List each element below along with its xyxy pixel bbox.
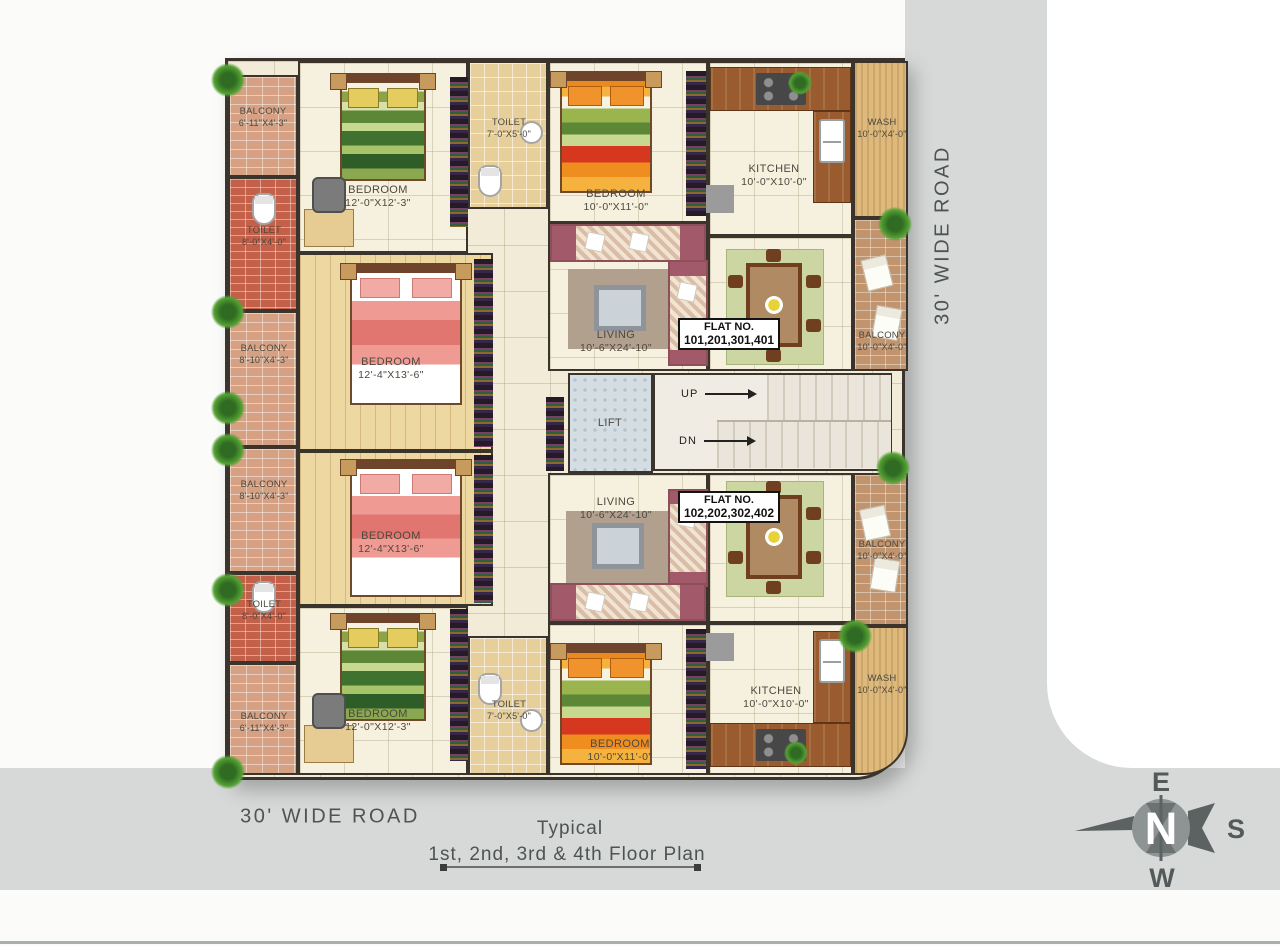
- bed-double: [350, 263, 462, 405]
- plant: [211, 755, 245, 789]
- plant: [878, 207, 912, 241]
- column: [706, 185, 734, 213]
- road-bottom-label: 30' WIDE ROAD: [240, 806, 420, 829]
- label-living-1: LIVING10'-6"X24'-10": [580, 328, 652, 356]
- label-living-2: LIVING10'-6"X24'-10": [580, 495, 652, 523]
- staircase: UP DN: [653, 373, 892, 471]
- caption-line1: Typical: [537, 818, 603, 840]
- label-bedroom-bottom-middle: BEDROOM10'-0"X11'-0": [588, 737, 653, 765]
- label-wash-top: WASH10'-0"X4'-0": [857, 117, 906, 141]
- column: [706, 633, 734, 661]
- plant: [211, 295, 245, 329]
- compass-w: W: [1149, 863, 1175, 891]
- compass-n: N: [1145, 803, 1178, 854]
- floor-plan-page: 30' WIDE ROAD 30' WIDE ROAD Typical 1st,…: [0, 0, 1280, 946]
- label-bedroom-top-middle: BEDROOM10'-0"X11'-0": [584, 187, 649, 215]
- sofa: [668, 260, 708, 366]
- room-balcony-left-3: [228, 447, 298, 573]
- stairs-up-direction: UP: [681, 388, 749, 400]
- label-toilet-top: TOILET7'-0"X5'-0": [487, 117, 531, 141]
- bed-double: [560, 71, 652, 193]
- stairs-down-direction: DN: [679, 435, 748, 447]
- label-lift: LIFT: [598, 416, 622, 430]
- office-chair: [312, 693, 346, 729]
- label-wash-bottom: WASH10'-0"X4'-0": [857, 673, 906, 697]
- compass-e: E: [1152, 767, 1170, 797]
- bed-double: [340, 613, 426, 721]
- sofa: [550, 224, 706, 262]
- plant: [211, 433, 245, 467]
- label-kitchen-bottom: KITCHEN10'-0"X10'-0": [743, 684, 809, 712]
- wardrobe: [450, 609, 468, 761]
- label-bedroom-top-left: BEDROOM12'-0"X12'-3": [345, 183, 411, 211]
- building-footprint: UP DN: [225, 58, 905, 780]
- label-balcony-left-3: BALCONY8'-10"X4'-3": [239, 479, 288, 503]
- plant: [211, 63, 245, 97]
- caption-rule: [443, 866, 698, 868]
- toilet-fixture: [478, 165, 502, 197]
- up-label: UP: [681, 388, 698, 400]
- label-balcony-bottom-left: BALCONY6'-11"X4'-3": [240, 711, 289, 735]
- plant: [211, 391, 245, 425]
- label-toilet-left-1: TOILET8'-0"X4'-0": [242, 225, 286, 249]
- compass-rose: N E S W: [1055, 766, 1270, 891]
- wardrobe: [546, 397, 564, 471]
- wardrobe: [686, 629, 706, 769]
- label-balcony-left-2: BALCONY8'-10"X4'-3": [239, 343, 288, 367]
- label-bedroom-bottom-left: BEDROOM12'-0"X12'-3": [345, 707, 411, 735]
- plant: [838, 619, 872, 653]
- dn-label: DN: [679, 435, 697, 447]
- road-right-label: 30' WIDE ROAD: [932, 145, 955, 325]
- stair-flight-up: [767, 375, 891, 420]
- label-balcony-top-left: BALCONY6'-11"X4'-3": [239, 106, 288, 130]
- label-bedroom-master-2: BEDROOM12'-4"X13'-6": [358, 529, 424, 557]
- wardrobe: [686, 71, 706, 216]
- label-balcony-right-1: BALCONY10'-0"X4'-0": [857, 330, 906, 354]
- road-corner-plot: [1047, 0, 1280, 768]
- plant: [211, 573, 245, 607]
- label-balcony-right-2: BALCONY10'-0"X4'-0": [857, 539, 906, 563]
- label-kitchen-top: KITCHEN10'-0"X10'-0": [741, 162, 807, 190]
- plant: [784, 741, 808, 765]
- toilet-fixture: [252, 193, 276, 225]
- flat1-number-box: FLAT NO.101,201,301,401: [678, 318, 780, 350]
- coffee-table: [594, 285, 646, 331]
- label-toilet-bottom: TOILET7'-0"X5'-0": [487, 699, 531, 723]
- office-chair: [312, 177, 346, 213]
- plant: [788, 71, 812, 95]
- up-arrow-icon: [705, 393, 749, 395]
- caption-line2: 1st, 2nd, 3rd & 4th Floor Plan: [428, 844, 705, 866]
- wardrobe: [450, 77, 468, 227]
- bed-double: [350, 459, 462, 597]
- compass-s: S: [1227, 814, 1245, 844]
- page-bottom-rule: [0, 941, 1280, 944]
- desk: [304, 209, 354, 247]
- bed-double: [340, 73, 426, 181]
- label-toilet-left-2: TOILET8'-0"X4'-0": [242, 599, 286, 623]
- sofa: [550, 583, 706, 621]
- label-bedroom-master-1: BEDROOM12'-4"X13'-6": [358, 355, 424, 383]
- wardrobe: [474, 455, 493, 603]
- dn-arrow-icon: [704, 440, 748, 442]
- plant: [876, 451, 910, 485]
- kitchen-sink: [819, 119, 845, 163]
- flat2-number-box: FLAT NO.102,202,302,402: [678, 491, 780, 523]
- coffee-table: [592, 523, 644, 569]
- wardrobe: [474, 259, 493, 447]
- room-balcony-left-2: [228, 311, 298, 447]
